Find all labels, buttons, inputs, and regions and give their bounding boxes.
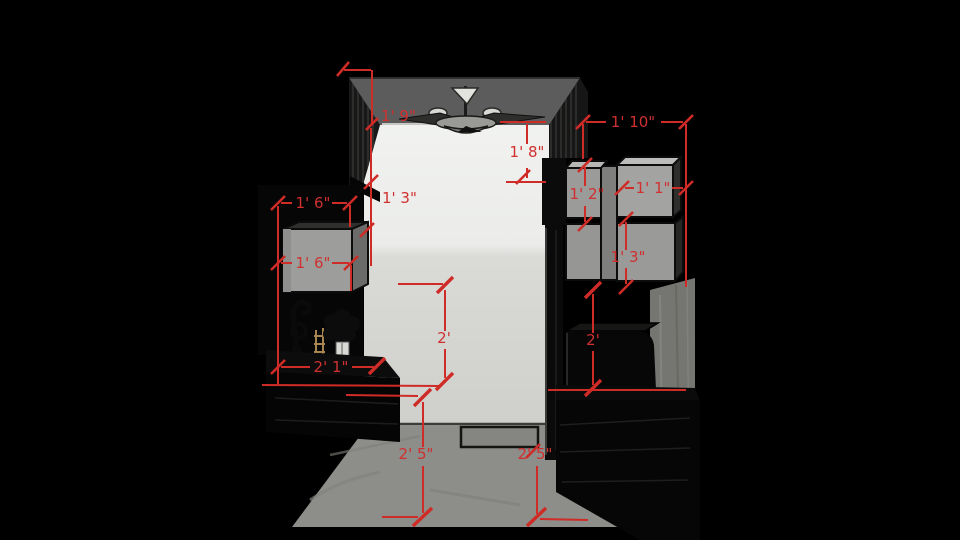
scene-canvas: 1' 9" 1' 3" 1' 8" 1' 10" 1' 2" 1' 1" 1' … [0,0,960,540]
dim-label-counter-height-right: 2' 5" [518,445,553,463]
dim-label-right-upper-height: 1' 2" [570,185,605,203]
dim-label-right-top-width: 1' 10" [611,113,655,131]
dim-label-right-upper-width: 1' 1" [636,179,671,197]
dim-label-center-clearance: 2' [437,329,451,347]
floor-step [461,427,538,447]
dim-label-right-clearance: 2' [586,331,600,349]
model-viewport[interactable]: 1' 9" 1' 3" 1' 8" 1' 10" 1' 2" 1' 1" 1' … [0,0,960,540]
dim-label-counter-height-left: 2' 5" [399,445,434,463]
dim-label-left-cab-top: 1' 6" [296,194,331,212]
dim-label-right-lower-height: 1' 3" [611,248,646,266]
dim-label-ceiling-soffit: 1' 9" [381,107,416,125]
dim-label-left-cab: 1' 6" [296,254,331,272]
dim-label-counter-depth: 2' 1" [314,358,349,376]
dim-label-right-soffit: 1' 8" [510,143,545,161]
dim-label-left-wall-gap: 1' 3" [382,189,417,207]
